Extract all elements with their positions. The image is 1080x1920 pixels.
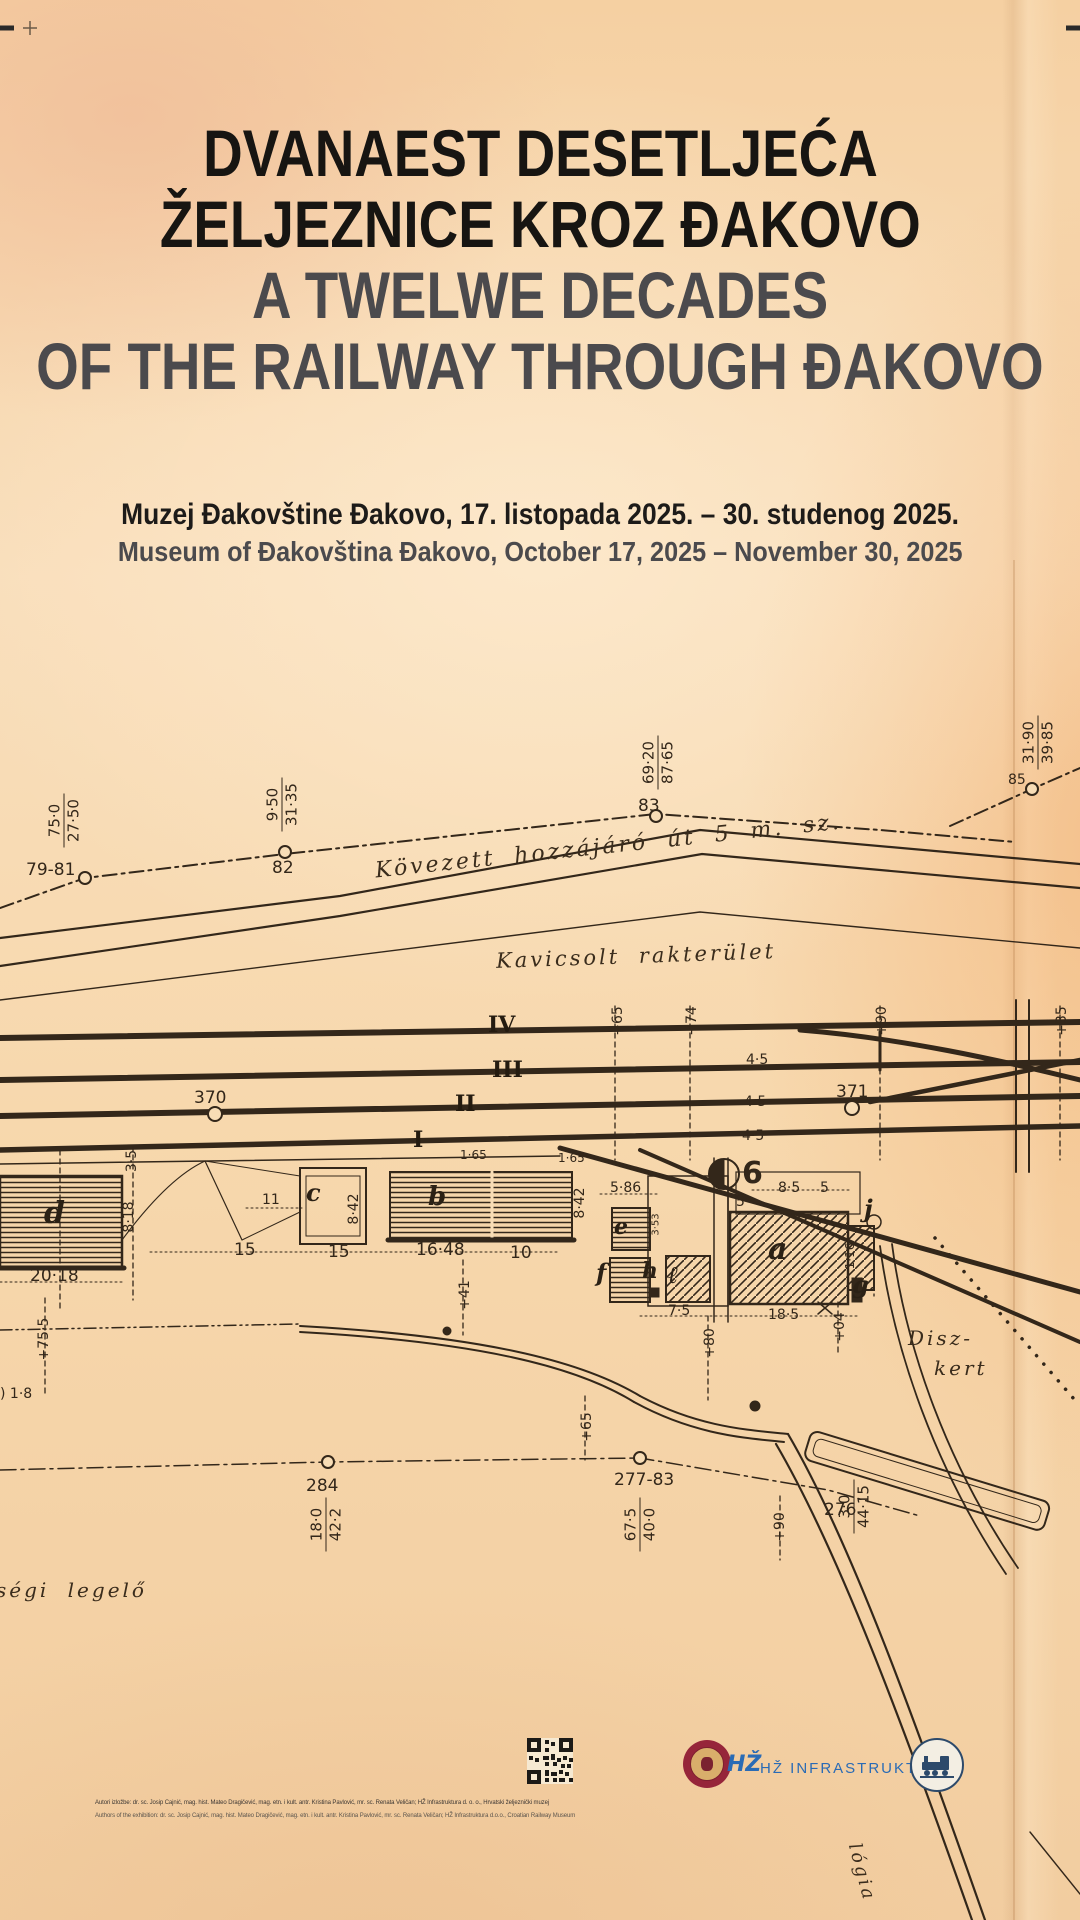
hz-logo: HŽ: [727, 1752, 761, 1777]
offset-label: +65: [610, 999, 626, 1043]
gauge-label: 4·5: [744, 1094, 766, 1110]
fraction-label: 31·9039·85: [1020, 716, 1057, 770]
building-label-e: e: [614, 1214, 628, 1240]
dim-label: 8·42: [346, 1187, 362, 1231]
offset-label: +90: [772, 1505, 788, 1549]
building-label-g: g: [852, 1270, 869, 1299]
exhibition-poster: DVANAEST DESETLJEĆA ŽELJEZNICE KROZ ĐAKO…: [0, 0, 1080, 1920]
offset-label: +35: [1054, 999, 1070, 1043]
garden-label-1: Disz-: [908, 1326, 973, 1350]
offset-label: +74: [684, 999, 700, 1043]
credits-line-hr: Autori izložbe: dr. sc. Josip Cajnić, ma…: [95, 1800, 549, 1806]
station-label: 277-83: [614, 1470, 674, 1490]
crop-mark: [0, 21, 1080, 35]
dim-label: 1·65: [558, 1151, 585, 1165]
dim-label: 8·18: [121, 1195, 137, 1239]
building-label-c: c: [306, 1178, 321, 1207]
dim-label: 11: [262, 1192, 280, 1208]
station-label: 79-81: [26, 860, 75, 880]
turntable-label: 6: [742, 1156, 763, 1191]
dim-label: 8·5: [778, 1180, 800, 1196]
offset-label: +65: [579, 1405, 595, 1449]
garden-label-2: kert: [934, 1356, 988, 1380]
gauge-label: 4·5: [746, 1052, 768, 1068]
building-label-l: ℓ: [668, 1260, 678, 1290]
dim-label: 18·5: [768, 1307, 799, 1323]
station-label: 85: [1008, 772, 1026, 788]
station-label: 371: [836, 1082, 868, 1102]
fraction-label: 69·2087·65: [640, 736, 677, 790]
railway-museum-logo: [910, 1738, 964, 1792]
dim-label: 3·5: [124, 1139, 140, 1183]
steam-locomotive-icon: [920, 1752, 954, 1778]
offset-label: +41: [457, 1273, 473, 1317]
pasture-label: ségi legelő: [0, 1578, 147, 1602]
qr-code: [527, 1738, 573, 1784]
building-label-d: d: [44, 1196, 65, 1231]
dim-label: 7·5: [668, 1303, 690, 1319]
track-label-i: I: [413, 1127, 423, 1153]
dim-label: ) 1·8: [0, 1386, 32, 1402]
fraction-label: 67·540·0: [622, 1498, 659, 1552]
fraction-label: 3·044·15: [836, 1480, 873, 1534]
track-label-iii: III: [492, 1057, 523, 1083]
offset-label: +04: [832, 1305, 848, 1349]
station-label: 83: [638, 796, 660, 816]
dim-label: 10: [510, 1243, 532, 1263]
dim-label: 20·18: [30, 1266, 79, 1286]
offset-label: +75·5: [36, 1317, 52, 1361]
fraction-label: 75·027·50: [46, 794, 83, 848]
gauge-label: 4·5: [742, 1128, 764, 1144]
building-label-a: a: [768, 1232, 787, 1267]
station-label: 370: [194, 1088, 226, 1108]
dim-label: 1·65: [460, 1148, 487, 1162]
track-label-ii: II: [455, 1091, 476, 1117]
building-label-j: j: [864, 1194, 873, 1223]
dim-label: 8·42: [572, 1181, 588, 1225]
dim-label: 5: [820, 1180, 829, 1196]
fraction-label: 9·5031·35: [264, 778, 301, 832]
offset-label: +80: [702, 1321, 718, 1365]
offset-label: +90: [874, 999, 890, 1043]
museum-djakovstine-logo: [683, 1740, 731, 1788]
station-label: 82: [272, 858, 294, 878]
dim-label: 5·86: [610, 1180, 641, 1196]
building-label-f: f: [596, 1258, 606, 1287]
dim-label: 15: [328, 1242, 350, 1262]
building-label-b: b: [428, 1182, 446, 1212]
dim-label: 15: [234, 1240, 256, 1260]
dim-label: 5: [736, 1194, 745, 1210]
building-label-h: h: [642, 1258, 658, 1284]
dim-label: 3·53: [651, 1203, 662, 1247]
track-label-iv: IV: [488, 1012, 515, 1038]
dim-label: 16·48: [416, 1240, 465, 1260]
fraction-label: 18·042·2: [308, 1498, 345, 1552]
station-label: 284: [306, 1476, 338, 1496]
credits-line-en: Authors of the exhibition: dr. sc. Josip…: [95, 1813, 575, 1819]
